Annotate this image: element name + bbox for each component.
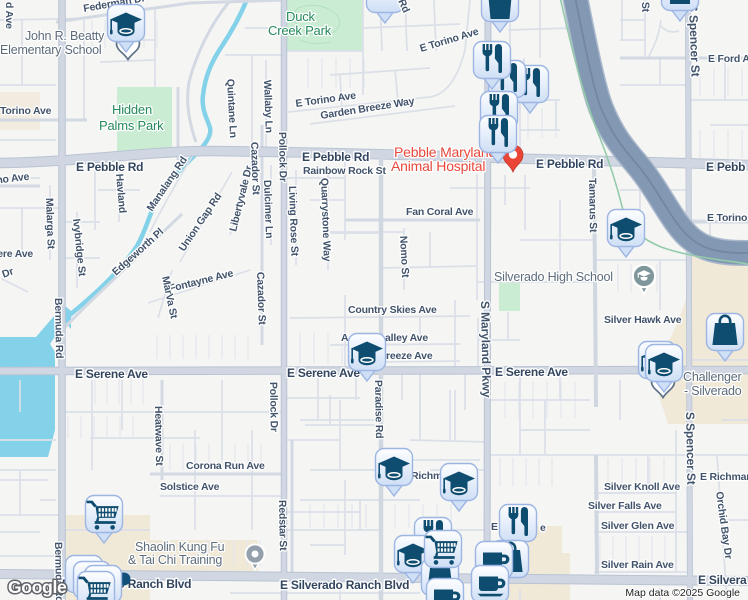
svg-text:Malarga St: Malarga St — [43, 198, 57, 250]
svg-text:E Torino: E Torino — [707, 212, 747, 224]
svg-text:e: e — [540, 522, 546, 534]
svg-text:d Ave: d Ave — [3, 2, 15, 29]
svg-text:E Pebb: E Pebb — [706, 160, 745, 174]
svg-text:S Spencer St: S Spencer St — [683, 412, 698, 485]
svg-text:Elementary School: Elementary School — [0, 43, 102, 57]
svg-text:Silver Falls Ave: Silver Falls Ave — [588, 500, 662, 512]
svg-text:S Spencer St: S Spencer St — [686, 4, 703, 77]
svg-text:Challenger: Challenger — [683, 370, 741, 384]
svg-text:E Serene Ave: E Serene Ave — [495, 365, 568, 379]
svg-text:Bermuda Rd: Bermuda Rd — [52, 298, 65, 359]
svg-text:Corona Run Ave: Corona Run Ave — [186, 460, 265, 472]
svg-text:Tamarus St: Tamarus St — [586, 178, 599, 233]
svg-text:reeze Ave: reeze Ave — [386, 350, 433, 362]
svg-text:Nomo St: Nomo St — [397, 236, 411, 279]
svg-text:Creek Park: Creek Park — [268, 23, 332, 38]
svg-text:Silverado High School: Silverado High School — [494, 270, 613, 284]
svg-text:E Pebble Rd: E Pebble Rd — [76, 160, 143, 174]
svg-text:- Silverado: - Silverado — [684, 384, 742, 398]
svg-text:John R. Beatty: John R. Beatty — [25, 29, 105, 43]
svg-text:Google: Google — [8, 577, 67, 597]
svg-text:Fan Coral Ave: Fan Coral Ave — [406, 206, 474, 218]
svg-text:alley Ave: alley Ave — [385, 332, 428, 344]
svg-text:E Serene Ave: E Serene Ave — [287, 366, 360, 380]
svg-text:Silver Glen Ave: Silver Glen Ave — [601, 520, 675, 532]
svg-text:& Tai Chi Training: & Tai Chi Training — [128, 553, 222, 567]
svg-text:E Pebble Rd: E Pebble Rd — [536, 157, 603, 171]
svg-text:Torino Ave: Torino Ave — [0, 105, 52, 117]
svg-text:Rainbow Rock St: Rainbow Rock St — [303, 165, 386, 177]
svg-text:E: E — [491, 521, 498, 533]
svg-text:Silver Knoll Ave: Silver Knoll Ave — [604, 481, 680, 493]
svg-text:Shaolin Kung Fu: Shaolin Kung Fu — [135, 540, 225, 554]
svg-text:S Maryland Pkwy: S Maryland Pkwy — [478, 301, 494, 398]
svg-text:Solstice Ave: Solstice Ave — [160, 481, 220, 493]
svg-text:St: St — [639, 2, 651, 13]
svg-text:Dulcimer Ln: Dulcimer Ln — [261, 180, 275, 239]
svg-text:Heatwave St: Heatwave St — [152, 406, 165, 467]
svg-text:E Richman: E Richman — [700, 471, 748, 483]
svg-text:Living Rose St: Living Rose St — [286, 186, 300, 257]
svg-text:Country Skies Ave: Country Skies Ave — [348, 304, 437, 316]
svg-text:Silver Hawk Ave: Silver Hawk Ave — [604, 314, 682, 326]
svg-text:Duck: Duck — [286, 9, 316, 24]
svg-text:E Serene Ave: E Serene Ave — [75, 367, 148, 381]
svg-text:Silver Rain Ave: Silver Rain Ave — [601, 559, 674, 571]
svg-text:E Ford A: E Ford A — [708, 53, 748, 65]
svg-text:Pollock Dr: Pollock Dr — [267, 382, 280, 432]
svg-text:Cazador St: Cazador St — [248, 142, 262, 196]
svg-text:Hidden: Hidden — [112, 102, 152, 117]
svg-text:E Silverado Ranch Blvd: E Silverado Ranch Blvd — [280, 578, 409, 592]
svg-text:A: A — [341, 332, 349, 344]
svg-text:E Silvera: E Silvera — [698, 573, 747, 587]
svg-text:Pollock Dr: Pollock Dr — [276, 132, 289, 182]
svg-text:Map data ©2025 Google: Map data ©2025 Google — [625, 587, 740, 599]
svg-text:Paradise Rd: Paradise Rd — [372, 380, 385, 439]
svg-text:Wallaby Ln: Wallaby Ln — [261, 80, 275, 133]
svg-text:Cazador St: Cazador St — [254, 272, 268, 326]
svg-text:here Ave: here Ave — [0, 248, 33, 260]
svg-text:E Pebble Rd: E Pebble Rd — [302, 150, 369, 164]
svg-text:Redstar St: Redstar St — [276, 500, 289, 551]
svg-text:Palms Park: Palms Park — [99, 118, 164, 133]
svg-text:Animal Hospital: Animal Hospital — [391, 158, 485, 174]
